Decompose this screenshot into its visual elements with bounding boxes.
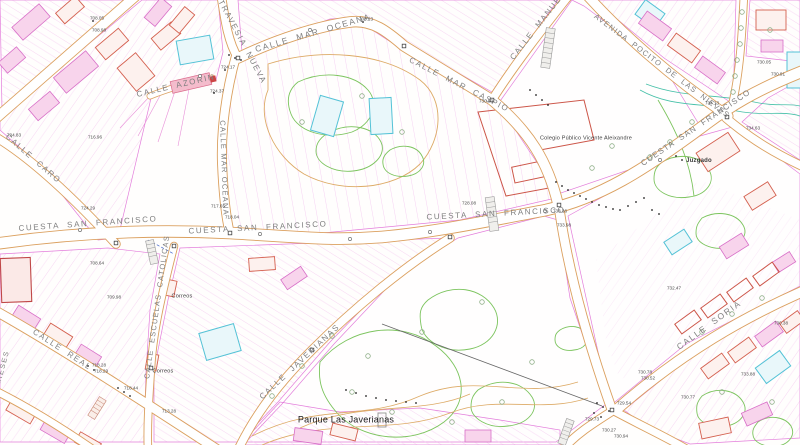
cadastral-map-viewport[interactable]: TRAVESIA NUEVACALLE MAR OCEANACALLE MAR … xyxy=(0,0,800,445)
map-linework xyxy=(0,0,800,445)
